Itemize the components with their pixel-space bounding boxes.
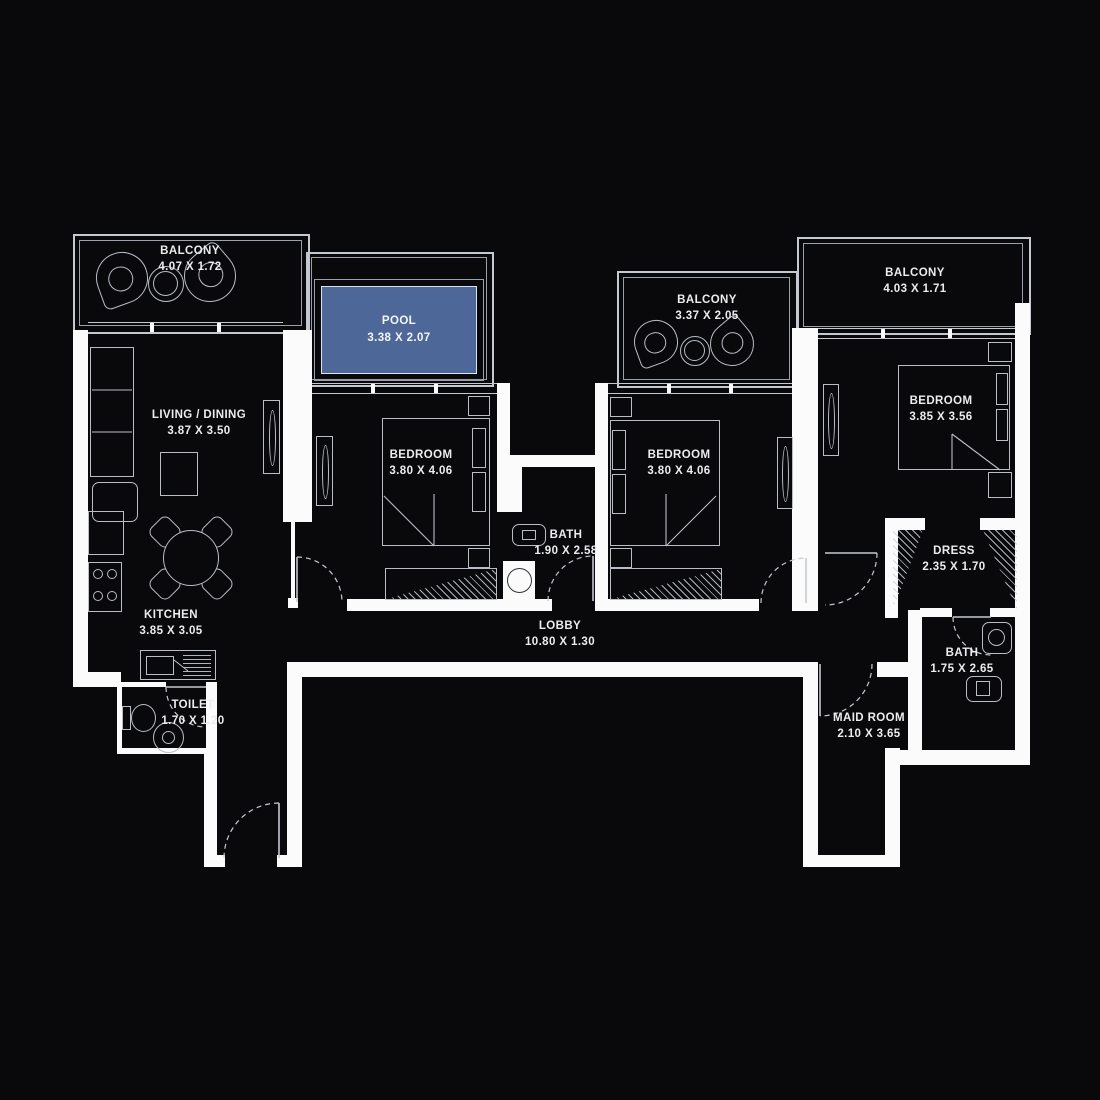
- wall-door-jamb-stub: [288, 598, 298, 608]
- kitchen-counter: [140, 650, 216, 680]
- wall-dress-bottom-right: [990, 608, 1017, 617]
- room-label-bedroom-3: BEDROOM3.85 X 3.56: [909, 393, 972, 425]
- wall-right-outer: [1015, 303, 1030, 765]
- wall-bedroom2-right: [792, 328, 818, 611]
- tv-unit-bedroom-2: [777, 437, 793, 509]
- burner-icon: [93, 569, 103, 579]
- wall-niche-bottom: [497, 455, 608, 467]
- wall-bath1-stub: [497, 467, 522, 512]
- pillow: [612, 430, 626, 470]
- wall-bath2-bottom: [885, 750, 1030, 765]
- room-label-balcony-left: BALCONY4.07 X 1.72: [158, 243, 221, 275]
- nightstand: [468, 548, 490, 568]
- sink-basin-icon: [988, 629, 1005, 646]
- wardrobe-bedroom-2: [610, 568, 722, 600]
- wall-lobby-top-left: [347, 599, 552, 611]
- wall-entry-right: [287, 662, 302, 867]
- window-living: [88, 322, 283, 333]
- room-label-bedroom-1: BEDROOM3.80 X 4.06: [389, 447, 452, 479]
- wardrobe-dress-left: [893, 530, 923, 610]
- burner-icon: [107, 569, 117, 579]
- wardrobe-hatch: [611, 569, 721, 599]
- bed-bedroom-2: [610, 420, 720, 546]
- room-label-living-dining: LIVING / DINING3.87 X 3.50: [152, 407, 246, 439]
- tv-unit-living: [263, 400, 280, 474]
- balcony-table: [680, 336, 710, 366]
- counter-hatch: [183, 655, 211, 676]
- wall-left-outer: [73, 330, 88, 687]
- tv-screen-bedroom-1: [322, 445, 329, 499]
- toilet-tank: [122, 706, 131, 730]
- room-label-toilet: TOILET1.70 X 1.20: [161, 697, 224, 729]
- door-arc-entry: [224, 803, 279, 858]
- dining-table: [163, 530, 219, 586]
- room-label-lobby: LOBBY10.80 X 1.30: [525, 618, 595, 650]
- room-label-bath-1: BATH1.90 X 2.58: [534, 527, 597, 559]
- wall-toilet-top: [117, 682, 166, 687]
- room-label-balcony-middle: BALCONY3.37 X 2.05: [675, 292, 738, 324]
- wall-bedroom2-bottom: [608, 599, 759, 611]
- wall-maid-left: [803, 662, 818, 855]
- chair-seat-icon: [717, 328, 747, 358]
- tv-screen-bedroom-3: [828, 393, 835, 448]
- wall-left-elbow: [73, 672, 121, 687]
- pool: POOL 3.38 X 2.07: [321, 286, 477, 374]
- room-label-dress: DRESS2.35 X 1.70: [922, 543, 985, 575]
- kitchen-sink: [146, 656, 174, 675]
- wall-dress-bottom-left: [920, 608, 952, 617]
- nightstand: [610, 548, 632, 568]
- wall-bath1-right: [595, 383, 608, 611]
- coffee-table: [160, 452, 198, 496]
- floor-plan: POOL 3.38 X 2.07: [0, 0, 1100, 1100]
- tv-screen-living: [269, 410, 276, 467]
- wardrobe-bedroom-1: [385, 568, 497, 600]
- room-label-kitchen: KITCHEN3.85 X 3.05: [139, 607, 202, 639]
- door-arc-bedroom-3-hall: [825, 553, 877, 605]
- wall-maid-bottom: [803, 855, 900, 867]
- tv-unit-bedroom-1: [316, 436, 333, 506]
- wc-seat-icon: [976, 681, 990, 696]
- window-bedroom-3: [818, 328, 1015, 339]
- chair-seat-icon: [641, 329, 668, 356]
- pillow: [472, 428, 486, 468]
- wall-entry-bottom-left: [204, 855, 225, 867]
- wardrobe-dress-right: [983, 530, 1017, 610]
- room-label-bath-2: BATH1.75 X 2.65: [930, 645, 993, 677]
- tv-unit-bedroom-3: [823, 384, 839, 456]
- door-arc-bath-1: [548, 556, 593, 601]
- pillow: [996, 409, 1008, 441]
- wall-entry-left: [204, 753, 217, 867]
- window-bedroom-1: [312, 383, 497, 394]
- wall-bedroom3-bottom-right: [980, 518, 1017, 530]
- basin-drain-icon: [162, 731, 175, 744]
- room-label-balcony-right: BALCONY4.03 X 1.71: [883, 265, 946, 297]
- pillow: [612, 474, 626, 514]
- wall-lobby-bottom: [300, 662, 818, 677]
- pool-label: POOL: [382, 313, 416, 330]
- pillow: [472, 472, 486, 512]
- shower-block-bath-1: [503, 561, 535, 600]
- wall-maid-right: [885, 748, 900, 867]
- room-label-bedroom-2: BEDROOM3.80 X 4.06: [647, 447, 710, 479]
- nightstand: [610, 397, 632, 417]
- wc-bowl-icon: [507, 568, 532, 593]
- room-label-maid-room: MAID ROOM2.10 X 3.65: [833, 710, 905, 742]
- nightstand: [468, 396, 490, 416]
- sofa: [90, 347, 134, 477]
- nightstand: [988, 472, 1012, 498]
- tv-screen-bedroom-2: [782, 446, 789, 501]
- wall-bath2-left: [908, 610, 922, 758]
- wall-living-lobby-thin: [291, 522, 295, 600]
- nightstand: [988, 342, 1012, 362]
- table-top-icon: [684, 340, 705, 361]
- toilet-bowl-icon: [131, 704, 156, 732]
- door-arc-maid-room: [820, 664, 872, 716]
- kitchen-cabinet: [88, 511, 124, 555]
- chair-seat-icon: [105, 263, 137, 295]
- stove: [88, 562, 122, 612]
- burner-icon: [93, 591, 103, 601]
- window-bedroom-2: [608, 383, 792, 394]
- wardrobe-hatch: [386, 569, 496, 599]
- wc-bath-2: [966, 676, 1002, 702]
- pool-dims: 3.38 X 2.07: [367, 330, 430, 347]
- wall-living-bedroom1: [283, 330, 312, 522]
- pillow: [996, 373, 1008, 405]
- door-arc-living-lobby: [297, 557, 342, 602]
- burner-icon: [107, 591, 117, 601]
